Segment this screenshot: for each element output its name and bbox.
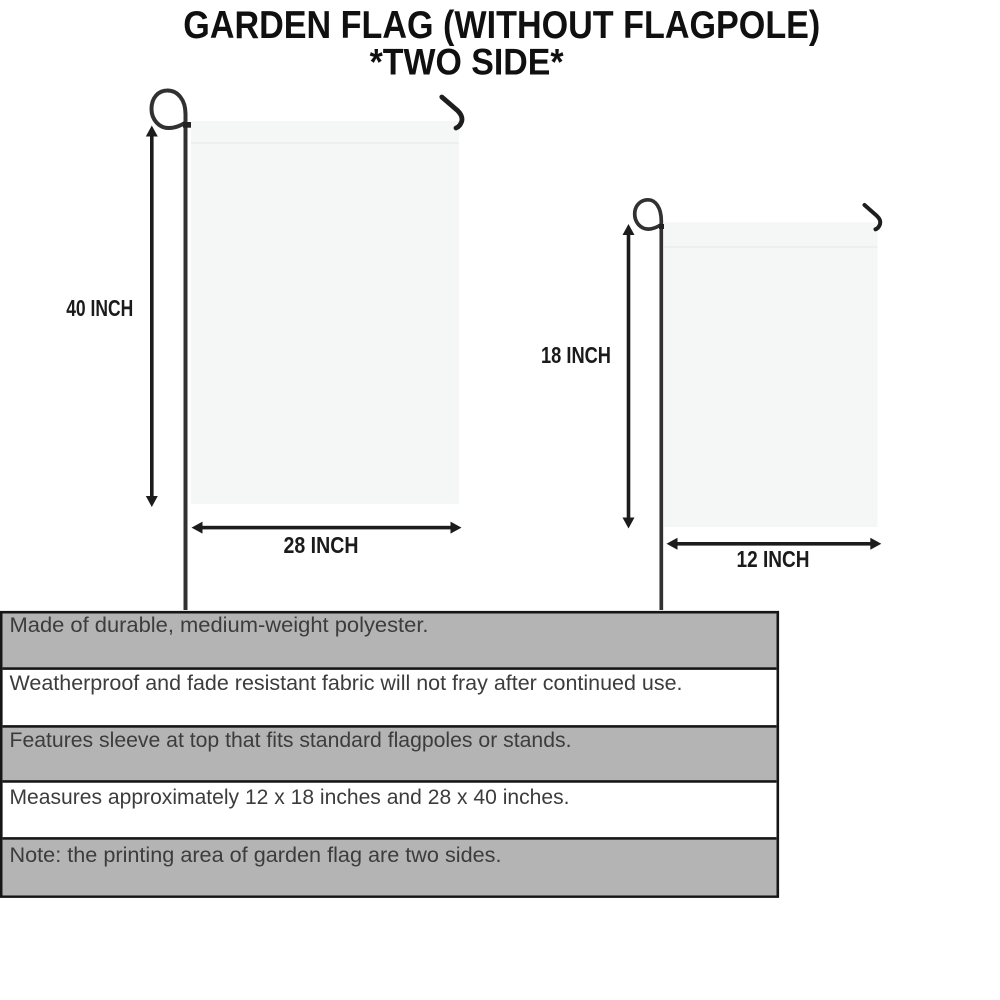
svg-text:18 INCH: 18 INCH xyxy=(541,342,611,368)
svg-text:28 INCH: 28 INCH xyxy=(284,532,359,558)
svg-text:*TWO SIDE*: *TWO SIDE* xyxy=(370,42,565,83)
svg-text:12 INCH: 12 INCH xyxy=(737,546,810,572)
svg-text:40 INCH: 40 INCH xyxy=(66,295,133,321)
svg-text:Features sleeve at top that fi: Features sleeve at top that fits standar… xyxy=(10,729,572,752)
svg-text:Measures approximately 12 x 18: Measures approximately 12 x 18 inches an… xyxy=(10,786,570,809)
svg-text:Note: the printing area of gar: Note: the printing area of garden flag a… xyxy=(10,844,502,867)
svg-text:Made of durable, medium-weight: Made of durable, medium-weight polyester… xyxy=(10,614,429,637)
svg-text:Weatherproof and fade resistan: Weatherproof and fade resistant fabric w… xyxy=(10,672,683,695)
